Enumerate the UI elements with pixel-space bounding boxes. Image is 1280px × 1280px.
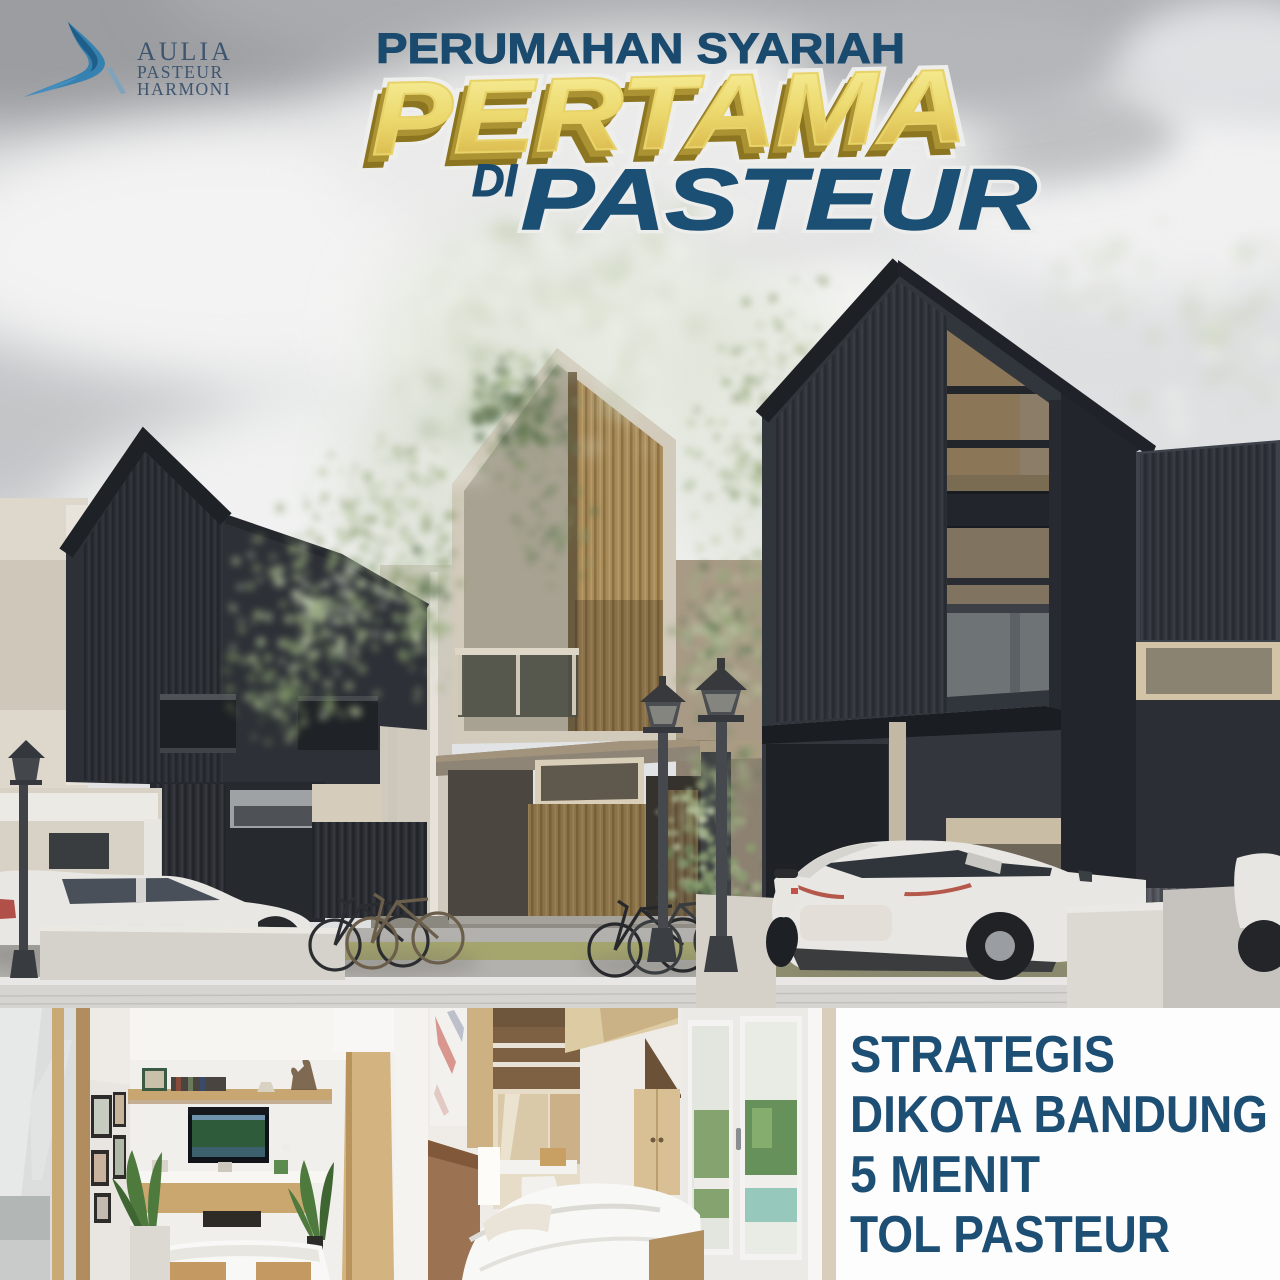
svg-text:TOL PASTEUR: TOL PASTEUR	[850, 1206, 1170, 1264]
svg-text:5 MENIT: 5 MENIT	[850, 1146, 1040, 1204]
svg-text:DIKOTA BANDUNG: DIKOTA BANDUNG	[850, 1086, 1268, 1144]
svg-text:HARMONI: HARMONI	[137, 79, 231, 99]
svg-text:DI: DI	[472, 155, 518, 206]
svg-text:STRATEGIS: STRATEGIS	[850, 1026, 1115, 1084]
svg-text:PASTEUR: PASTEUR	[521, 152, 1037, 248]
